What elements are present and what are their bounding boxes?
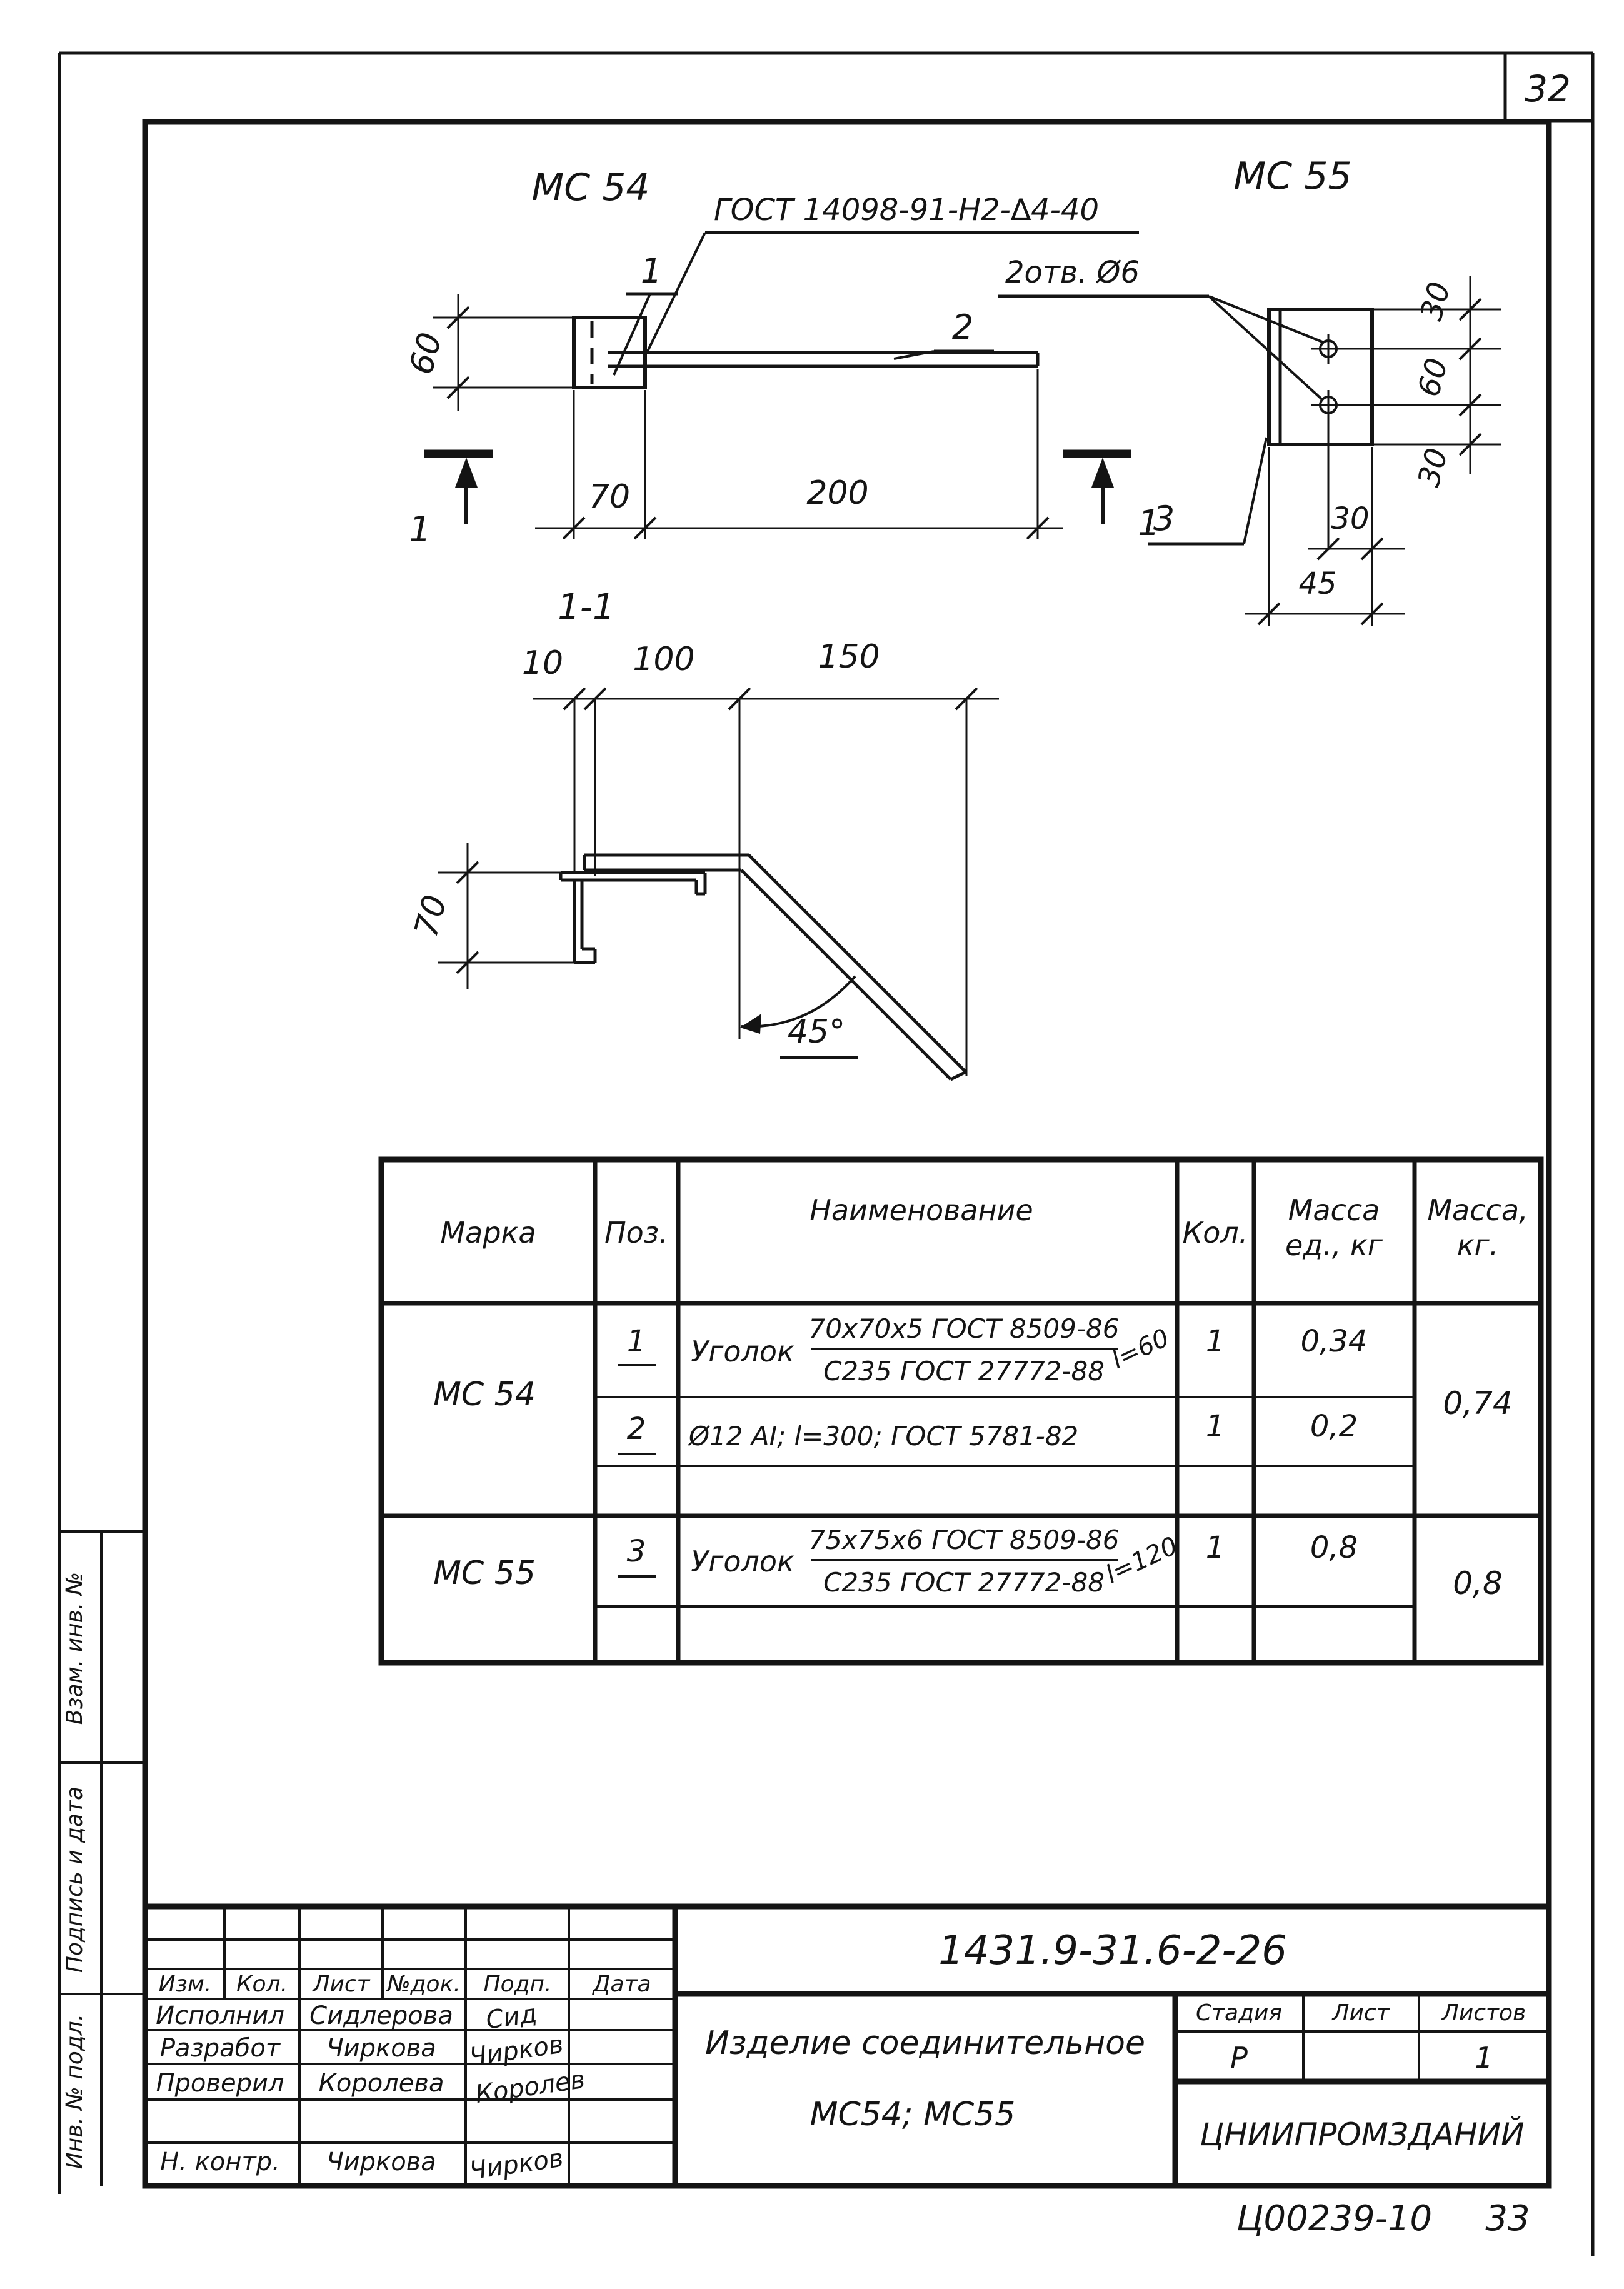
col-qty: Кол. bbox=[1183, 1216, 1248, 1250]
stamp-page: 33 bbox=[1485, 2198, 1530, 2239]
mc54-pos1-label: 1 bbox=[641, 251, 662, 291]
section-1-1: 1-1 10 100 150 bbox=[408, 587, 999, 1079]
role-nkontr: Н. контр. bbox=[160, 2148, 280, 2176]
product-name-line2: МС54; МС55 bbox=[810, 2096, 1016, 2133]
rev-izm: Изм. bbox=[159, 1971, 212, 1997]
row1-poz: 1 bbox=[627, 1324, 646, 1359]
row2-qty: 1 bbox=[1206, 1409, 1225, 1444]
product-name-line1: Изделие соединительное bbox=[705, 2025, 1145, 2062]
stage-value: Р bbox=[1230, 2041, 1248, 2075]
col-mass-unit-1: Масса bbox=[1288, 1193, 1380, 1227]
col-marka: Марка bbox=[440, 1216, 536, 1250]
col-mass-total-1: Масса, bbox=[1427, 1193, 1528, 1227]
section-dim-70: 70 bbox=[408, 891, 454, 941]
mc54-cut-label-left: 1 bbox=[409, 509, 431, 550]
section-dim-150: 150 bbox=[818, 638, 880, 676]
mc55-total-mass: 0,8 bbox=[1453, 1565, 1503, 1601]
mc54-title: МС 54 bbox=[531, 166, 649, 209]
sig-razrabot: Чирков bbox=[468, 2030, 565, 2072]
name-proveril: Королева bbox=[319, 2069, 444, 2098]
name-ispolnil: Сидлерова bbox=[309, 2001, 453, 2030]
rev-ndok: №док. bbox=[386, 1971, 461, 1997]
row2-mass: 0,2 bbox=[1310, 1409, 1358, 1444]
organization-name: ЦНИИПРОМЗДАНИЙ bbox=[1200, 2116, 1524, 2153]
strip-inv-label: Инв. № подл. bbox=[62, 2014, 88, 2169]
row1-mass: 0,34 bbox=[1301, 1324, 1368, 1359]
col-poz: Поз. bbox=[604, 1216, 668, 1250]
mc55-pos3-label: 3 bbox=[1153, 499, 1175, 538]
mc55-dim-30-bottom: 30 bbox=[1411, 444, 1455, 490]
mc55-dim-60: 60 bbox=[1411, 354, 1455, 400]
row1-marka: МС 54 bbox=[433, 1376, 536, 1413]
row3-prefix: Уголок bbox=[691, 1545, 794, 1578]
mc54-dim-60: 60 bbox=[403, 329, 449, 378]
mc54-total-mass: 0,74 bbox=[1443, 1385, 1512, 1421]
rev-kol: Кол. bbox=[236, 1971, 288, 1997]
drawing-sheet: 32 Взам. инв. № Подпись и дата Инв. № по… bbox=[0, 0, 1624, 2289]
view-mc54: МС 54 ГОСТ 14098-91-Н2-∆4-40 1 2 70 200 bbox=[403, 166, 1160, 550]
row1-profile: 70х70х5 ГОСТ 8509-86 bbox=[809, 1313, 1120, 1344]
mc54-pos2-label: 2 bbox=[952, 308, 973, 347]
rev-podp: Подп. bbox=[484, 1971, 552, 1997]
mc54-dim-70: 70 bbox=[589, 478, 630, 516]
sig-nkontr: Чирков bbox=[468, 2144, 565, 2186]
title-block: Изм. Кол. Лист №док. Подп. Дата Исполнил… bbox=[145, 1906, 1549, 2186]
row3-qty: 1 bbox=[1206, 1530, 1225, 1565]
section-dim-10: 10 bbox=[522, 644, 563, 682]
bottom-stamp: Ц00239-10 33 bbox=[1236, 2198, 1530, 2239]
sheets-header: Листов bbox=[1441, 2000, 1526, 2026]
stamp-code: Ц00239-10 bbox=[1236, 2198, 1432, 2239]
sheets-value: 1 bbox=[1475, 2041, 1493, 2075]
sheet-header: Лист bbox=[1331, 2000, 1390, 2026]
name-razrabot: Чиркова bbox=[326, 2034, 436, 2063]
col-name: Наименование bbox=[809, 1193, 1033, 1227]
section-dim-100: 100 bbox=[633, 641, 694, 678]
mc55-dim-45: 45 bbox=[1298, 566, 1336, 601]
rev-data: Дата bbox=[591, 1971, 651, 1997]
strip-podpis-label: Подпись и дата bbox=[62, 1786, 88, 1973]
mc54-weld-label: ГОСТ 14098-91-Н2-∆4-40 bbox=[714, 193, 1099, 228]
name-nkontr: Чиркова bbox=[326, 2148, 436, 2176]
row2-poz: 2 bbox=[627, 1411, 646, 1446]
sheet-frame: 32 bbox=[59, 53, 1593, 2256]
page-number: 32 bbox=[1525, 68, 1571, 110]
row2-name: Ø12 АI; l=300; ГОСТ 5781-82 bbox=[688, 1421, 1078, 1451]
spec-table: Марка Поз. Наименование Кол. Масса ед., … bbox=[381, 1160, 1541, 1663]
mc54-dim-200: 200 bbox=[806, 474, 868, 512]
role-proveril: Проверил bbox=[156, 2069, 284, 2098]
role-ispolnil: Исполнил bbox=[156, 2001, 284, 2030]
row1-steel: С235 ГОСТ 27772-88 bbox=[823, 1356, 1105, 1386]
col-mass-unit-2: ед., кг bbox=[1285, 1228, 1383, 1262]
strip-vzam-label: Взам. инв. № bbox=[62, 1572, 88, 1725]
row3-poz: 3 bbox=[627, 1534, 646, 1569]
mc55-holes-label: 2отв. Ø6 bbox=[1005, 255, 1140, 290]
mc55-title: МС 55 bbox=[1233, 154, 1351, 198]
row3-steel: С235 ГОСТ 27772-88 bbox=[823, 1567, 1105, 1598]
row1-qty: 1 bbox=[1206, 1324, 1225, 1359]
row1-prefix: Уголок bbox=[691, 1335, 794, 1368]
doc-number: 1431.9-31.6-2-26 bbox=[938, 1928, 1287, 1974]
mc55-dim-30-top: 30 bbox=[1414, 278, 1458, 324]
drawing-canvas: 32 Взам. инв. № Подпись и дата Инв. № по… bbox=[0, 0, 1624, 2289]
row3-marka: МС 55 bbox=[433, 1555, 536, 1592]
rev-list: Лист bbox=[311, 1971, 370, 1997]
section-title: 1-1 bbox=[558, 587, 614, 628]
row3-mass: 0,8 bbox=[1310, 1530, 1358, 1565]
section-angle-label: 45° bbox=[788, 1013, 845, 1051]
col-mass-total-2: кг. bbox=[1457, 1228, 1499, 1262]
side-strip: Взам. инв. № Подпись и дата Инв. № подл. bbox=[59, 1531, 145, 2186]
role-razrabot: Разработ bbox=[160, 2034, 281, 2063]
row3-profile: 75х75х6 ГОСТ 8509-86 bbox=[809, 1525, 1120, 1555]
stage-header: Стадия bbox=[1196, 2000, 1282, 2026]
mc55-dim-30-hole: 30 bbox=[1331, 501, 1369, 536]
